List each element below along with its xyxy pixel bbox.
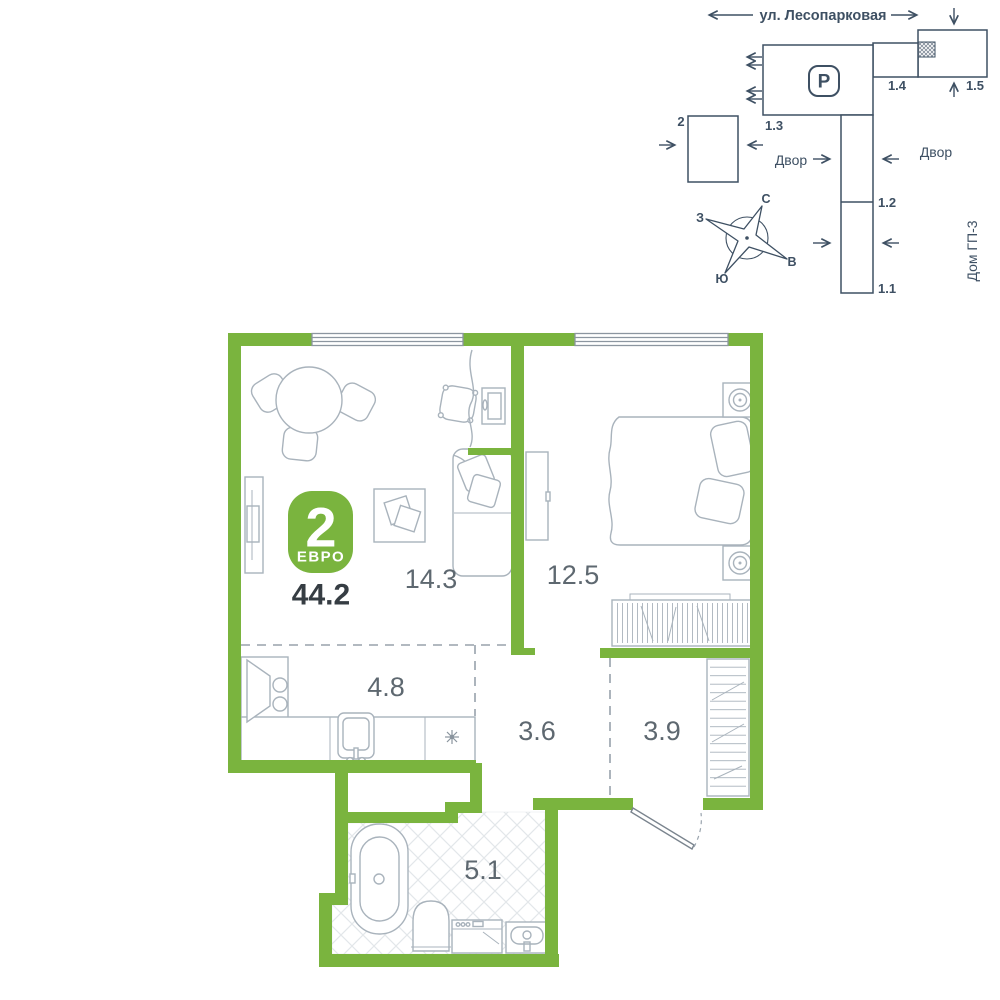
floor-plan: 2 ЕВРО 44.2 14.3 12.5 4.8 3.6 3.9 5.1 xyxy=(228,333,763,967)
toilet xyxy=(411,901,451,951)
corridor-wardrobe xyxy=(707,659,749,796)
building-1-3-label: 1.3 xyxy=(765,118,783,133)
tv-unit xyxy=(245,477,263,573)
desk-chair xyxy=(438,384,478,424)
entrance-door xyxy=(631,808,701,849)
bed xyxy=(609,417,756,545)
building-1-1-label: 1.1 xyxy=(878,281,896,296)
compass-north: С xyxy=(761,192,770,206)
sofa xyxy=(453,449,512,576)
door-swing-arc xyxy=(694,813,701,847)
desk xyxy=(482,388,505,424)
building-1-5-hatch xyxy=(918,42,935,57)
building-1-4 xyxy=(873,43,918,77)
washing-machine xyxy=(452,920,502,953)
parking-symbol: P xyxy=(818,72,831,93)
compass-east: В xyxy=(787,255,796,269)
compass-icon: С З В Ю xyxy=(696,192,796,286)
total-area-label: 44.2 xyxy=(292,579,350,612)
door-leaf xyxy=(631,808,694,849)
bedroom-window xyxy=(575,334,728,346)
kitchen-sink xyxy=(338,713,374,764)
compass-south: Ю xyxy=(716,272,729,286)
bathroom-area-label: 5.1 xyxy=(464,855,502,885)
plan-canvas: ул. Лесопарковая 1.5 1.4 P 1.3 1.2 1.1 2 xyxy=(0,0,1000,1000)
kitchen-area-label: 4.8 xyxy=(367,672,405,702)
building-1-5-label: 1.5 xyxy=(966,78,984,93)
bedroom-area-label: 12.5 xyxy=(547,560,600,590)
bedroom-tv-console xyxy=(526,452,550,540)
hob-symbol-icon xyxy=(445,730,459,744)
courtyard-right-label: Двор xyxy=(920,144,953,160)
building-2 xyxy=(688,116,738,182)
corridor-area-label: 3.9 xyxy=(643,716,681,746)
building-2-label: 2 xyxy=(677,114,684,129)
coffee-table xyxy=(374,489,425,542)
kitchen-furniture xyxy=(241,657,475,764)
compass-west: З xyxy=(696,211,704,225)
apartment-badge: 2 ЕВРО 44.2 xyxy=(288,491,353,612)
building-tower xyxy=(841,115,873,293)
bedroom-closet xyxy=(612,594,753,646)
living-room-area-label: 14.3 xyxy=(405,564,458,594)
house-label: Дом ГП-3 xyxy=(964,220,980,281)
courtyard-left-label: Двор xyxy=(775,152,808,168)
site-plan: ул. Лесопарковая 1.5 1.4 P 1.3 1.2 1.1 2 xyxy=(659,8,987,296)
bedroom-furniture xyxy=(526,383,757,646)
dining-table xyxy=(248,367,378,462)
building-1-2-label: 1.2 xyxy=(878,195,896,210)
building-1-4-label: 1.4 xyxy=(888,78,907,93)
bathtub xyxy=(350,824,408,934)
badge-layout-type: ЕВРО xyxy=(297,549,345,566)
bathroom-sink xyxy=(506,922,548,953)
living-room-window xyxy=(312,334,463,346)
living-room-furniture xyxy=(245,350,512,576)
hallway-area-label: 3.6 xyxy=(518,716,556,746)
floorplan-page: ул. Лесопарковая 1.5 1.4 P 1.3 1.2 1.1 2 xyxy=(0,0,1000,1000)
street-label: ул. Лесопарковая xyxy=(760,8,887,24)
